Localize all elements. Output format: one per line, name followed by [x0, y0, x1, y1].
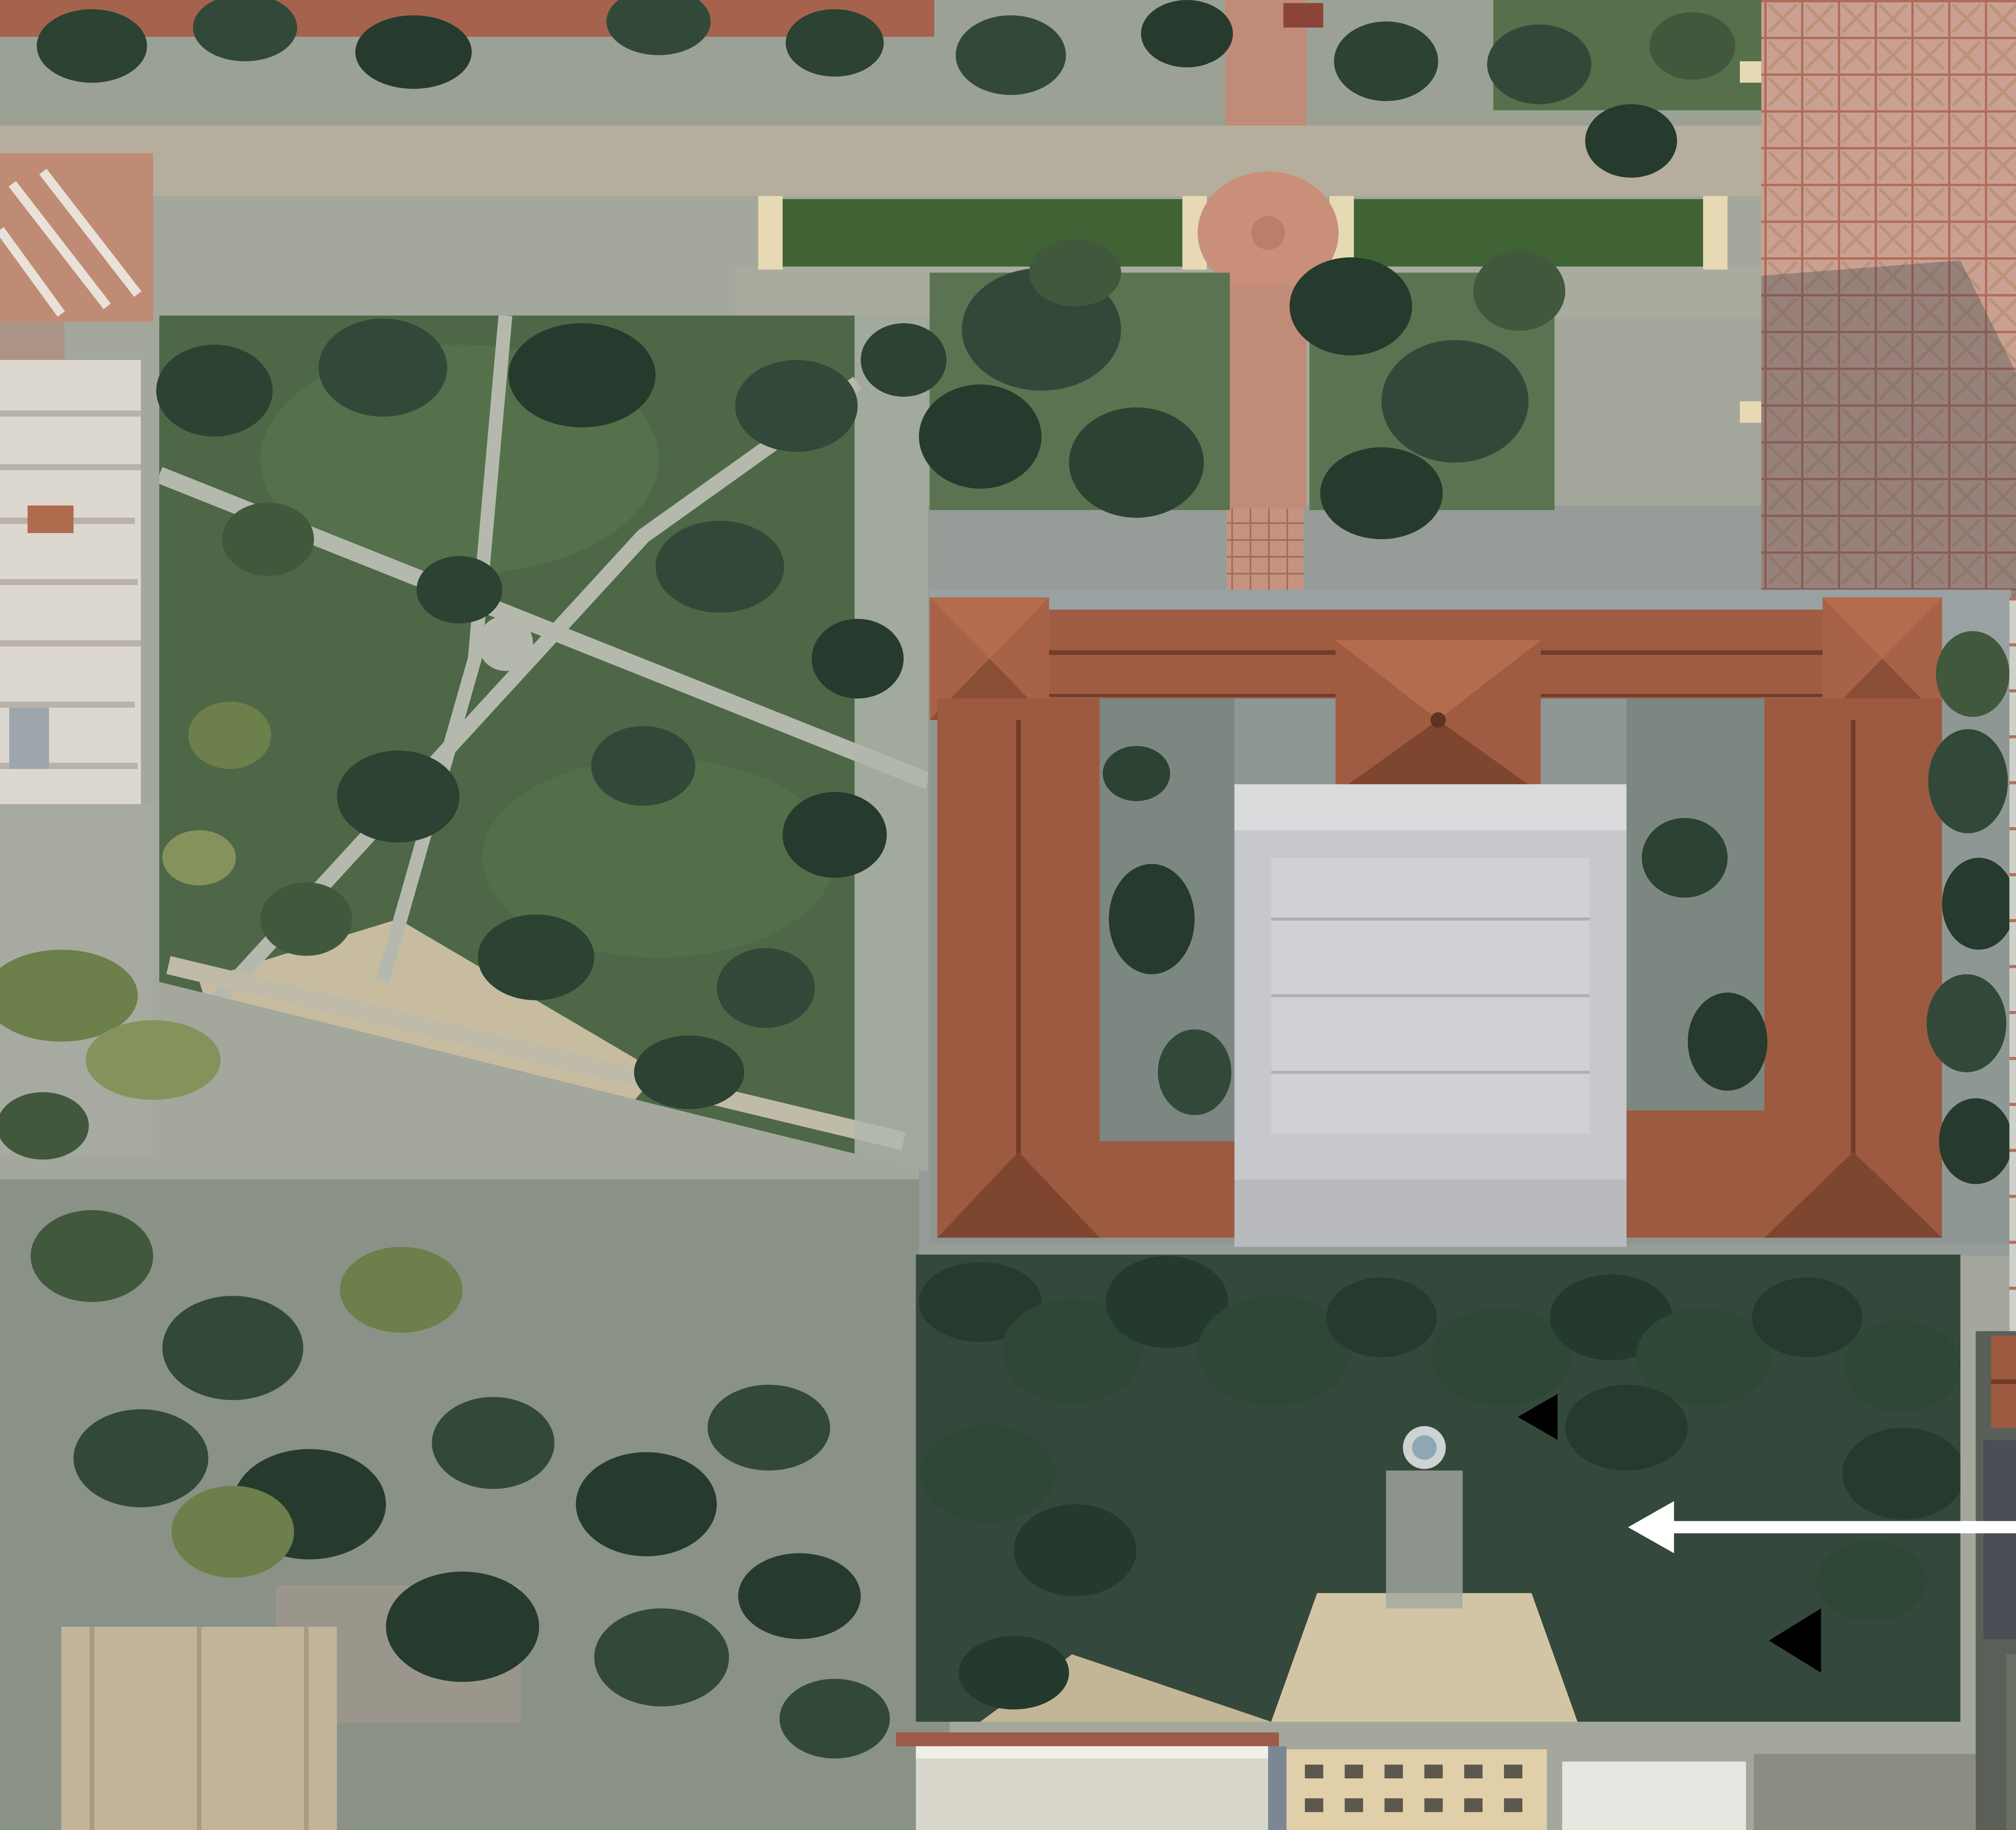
bovard-auditorium-label	[1172, 873, 1718, 1034]
buffet-drinks-label	[564, 861, 732, 951]
coffee-break-label	[1328, 326, 1522, 469]
posters-arrow	[1628, 1501, 2016, 1553]
sponsors-arrow	[1769, 1608, 2016, 1673]
entrance-label	[1360, 613, 1542, 671]
founders-park-outline	[159, 315, 928, 1171]
buffet-drinks-label	[273, 634, 441, 725]
demos-arrow	[1518, 1394, 2016, 1440]
associates-park-label	[564, 1383, 896, 1729]
buffet-label	[599, 506, 727, 563]
founders-park-label	[156, 165, 733, 308]
campus-map	[0, 0, 2016, 1830]
